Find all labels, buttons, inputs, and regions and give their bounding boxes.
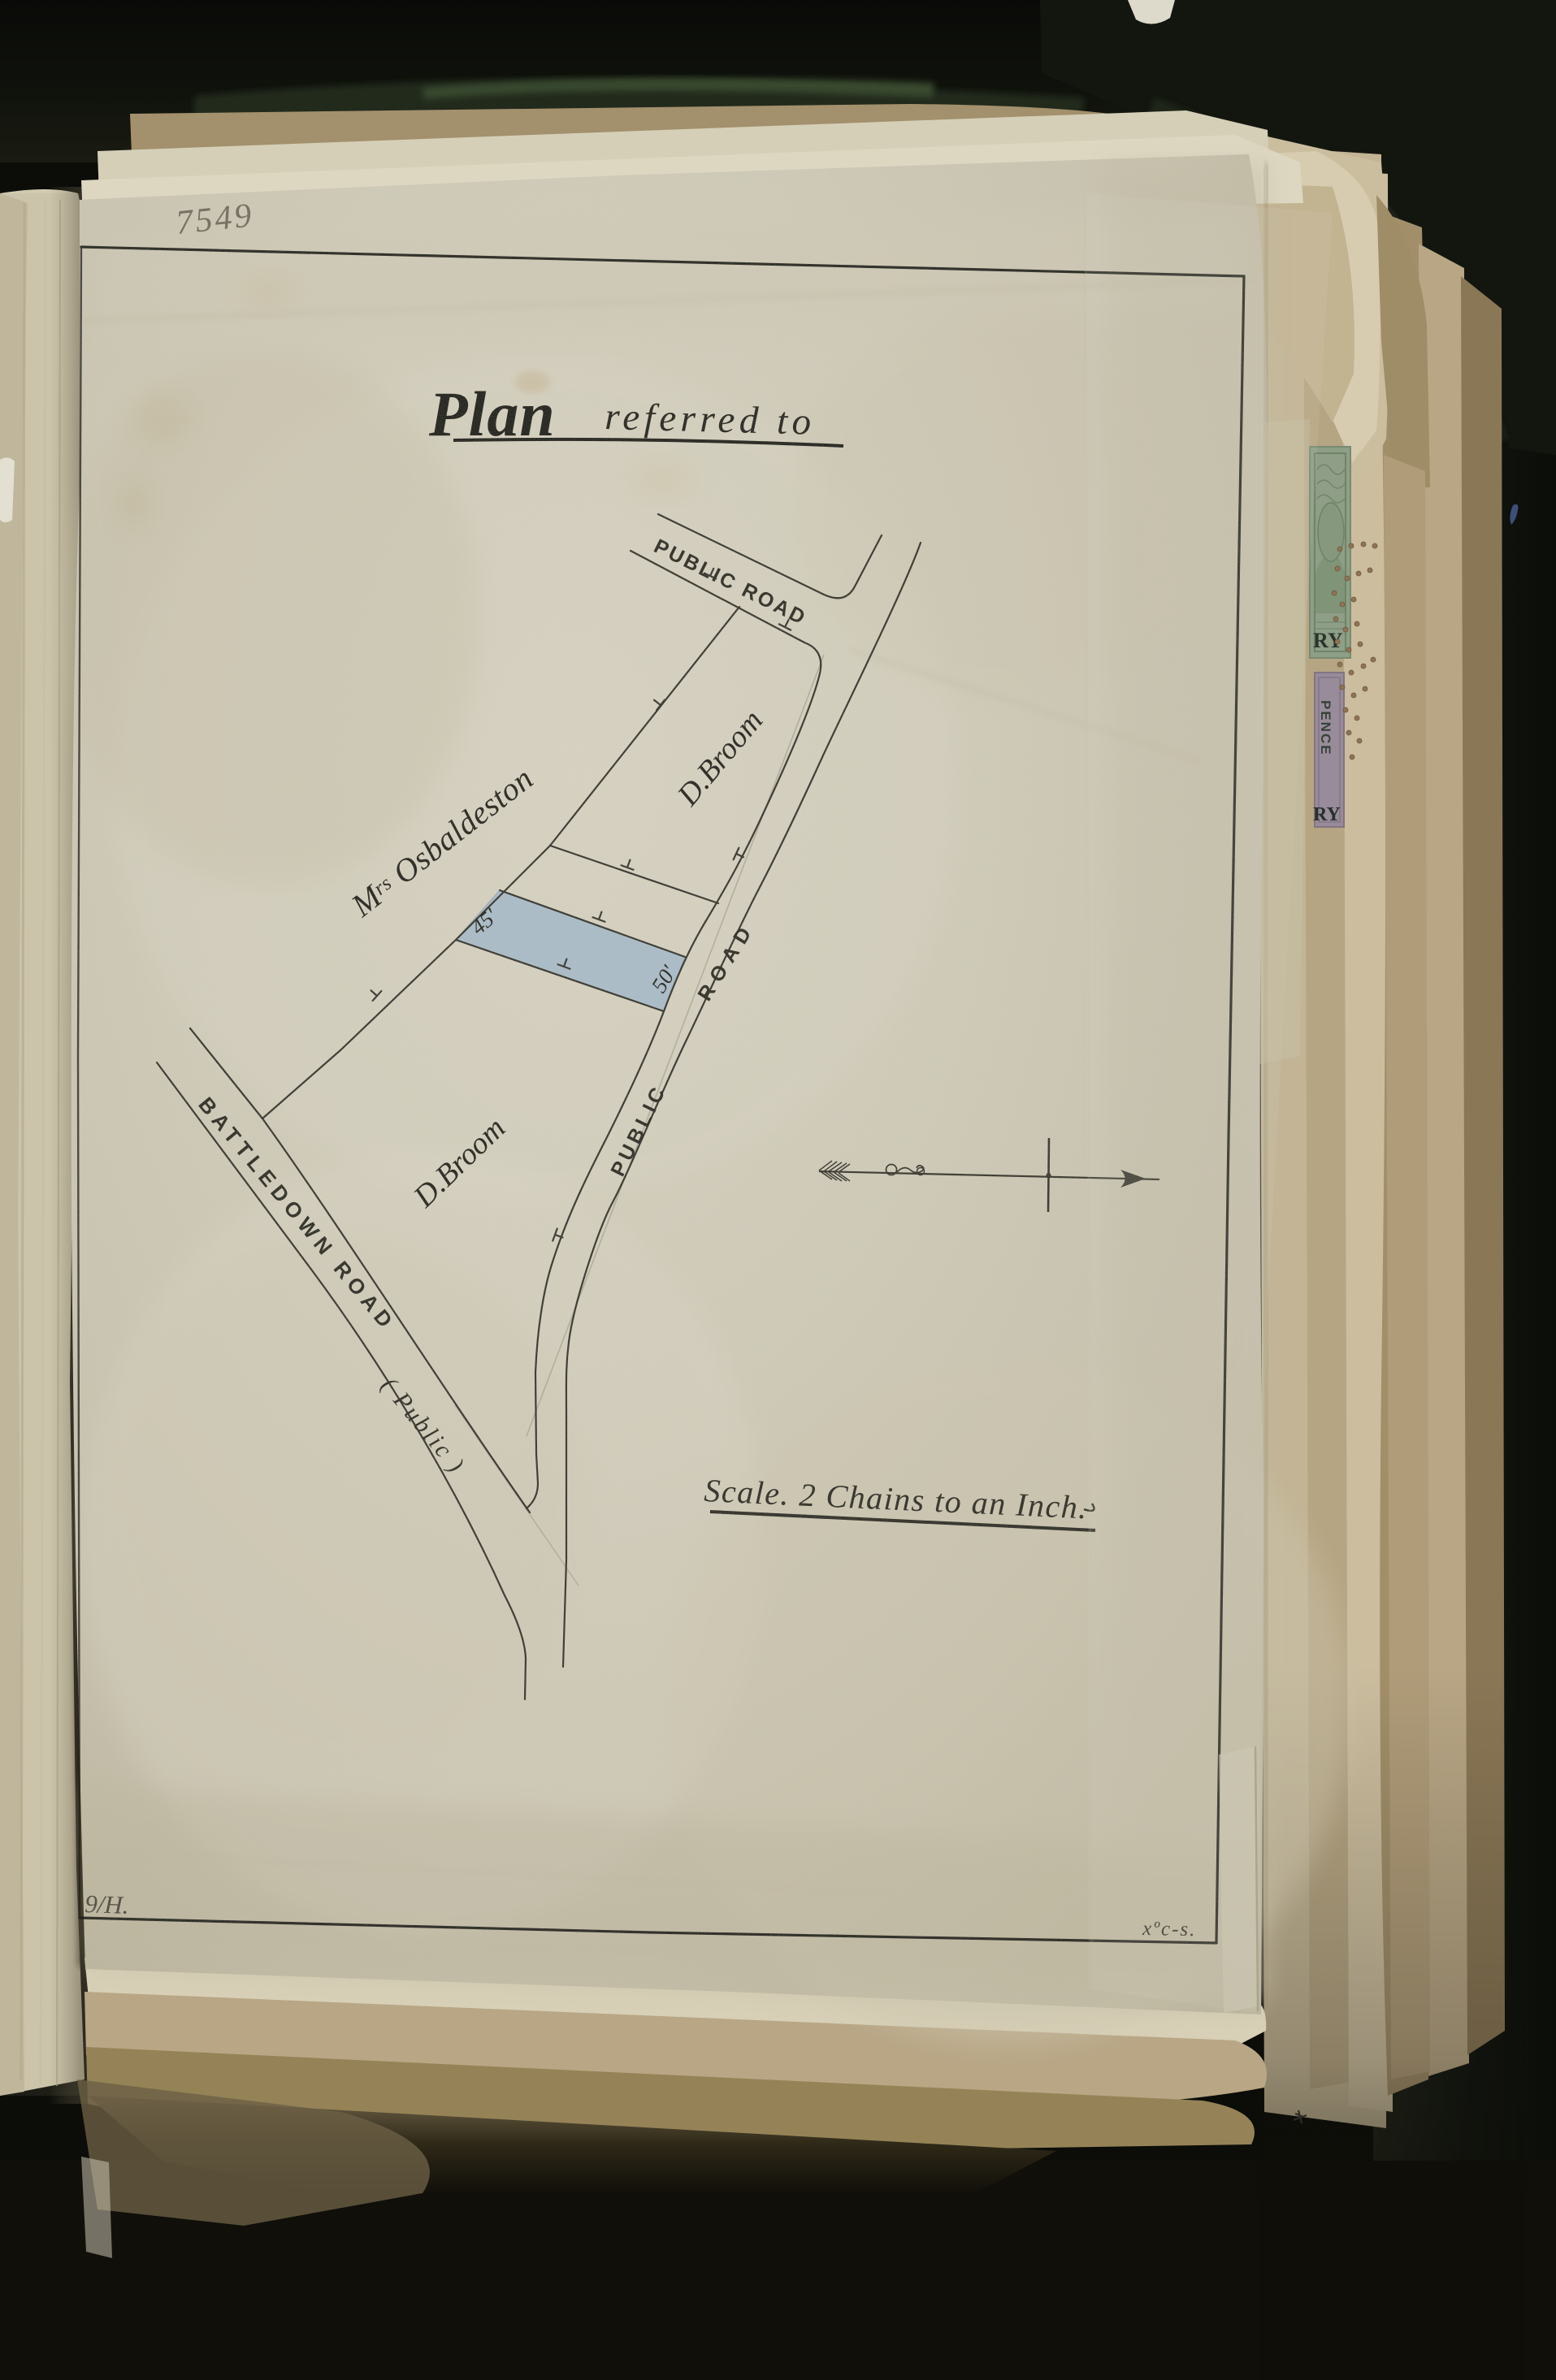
svg-text:PENCE: PENCE <box>1318 700 1333 756</box>
svg-text:RY: RY <box>1313 804 1341 825</box>
